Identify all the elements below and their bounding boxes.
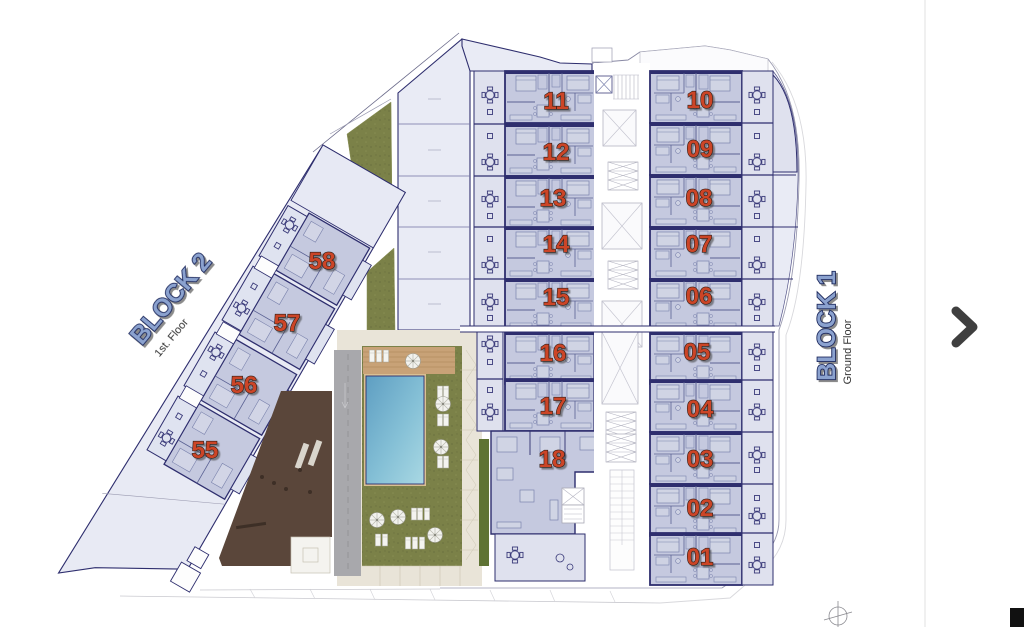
svg-text:13: 13 — [540, 185, 567, 212]
svg-text:03: 03 — [687, 446, 714, 473]
svg-text:11: 11 — [543, 88, 568, 115]
svg-text:10: 10 — [687, 87, 714, 114]
svg-text:57: 57 — [274, 310, 301, 337]
svg-text:BLOCK 1: BLOCK 1 — [813, 271, 841, 381]
svg-text:02: 02 — [687, 495, 714, 522]
svg-text:07: 07 — [686, 231, 713, 258]
svg-text:58: 58 — [309, 248, 336, 275]
svg-text:14: 14 — [543, 231, 570, 258]
svg-text:55: 55 — [192, 437, 219, 464]
svg-text:08: 08 — [686, 185, 713, 212]
svg-text:04: 04 — [687, 396, 714, 423]
svg-text:12: 12 — [543, 139, 570, 166]
svg-text:15: 15 — [543, 284, 570, 311]
svg-text:01: 01 — [687, 544, 714, 571]
svg-text:17: 17 — [540, 393, 567, 420]
svg-text:56: 56 — [231, 372, 258, 399]
svg-text:05: 05 — [684, 339, 711, 366]
svg-text:18: 18 — [539, 446, 566, 473]
svg-text:Ground Floor: Ground Floor — [842, 319, 854, 384]
svg-text:09: 09 — [687, 136, 714, 163]
svg-text:06: 06 — [686, 283, 713, 310]
svg-text:16: 16 — [540, 340, 567, 367]
